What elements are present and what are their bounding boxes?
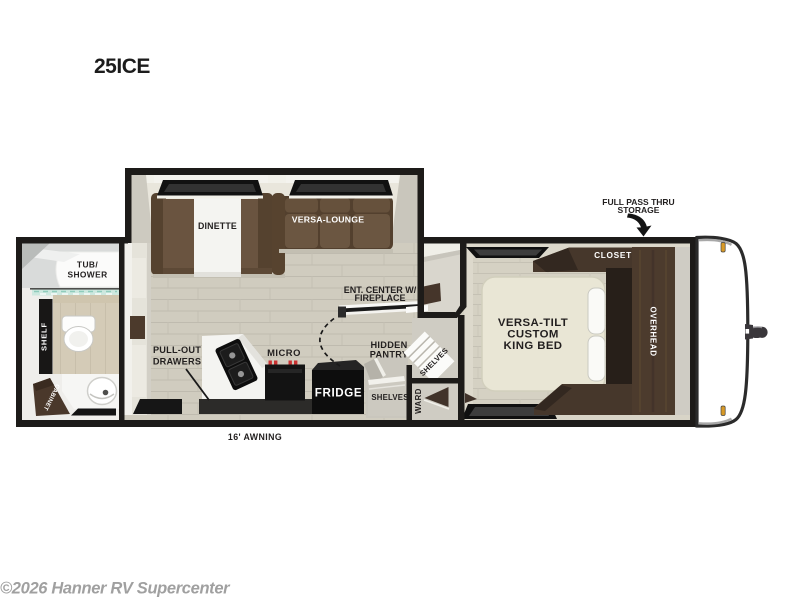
svg-text:25ICE: 25ICE [94,55,150,78]
svg-text:SHOWER: SHOWER [67,270,107,280]
svg-text:TUB/: TUB/ [77,260,98,270]
svg-text:FRIDGE: FRIDGE [315,387,362,400]
svg-text:©2026 Hanner RV Supercenter: ©2026 Hanner RV Supercenter [0,580,231,598]
svg-text:SHELVES: SHELVES [371,393,408,402]
svg-text:MICRO: MICRO [267,347,301,358]
svg-text:VERSA-TILT: VERSA-TILT [498,317,568,329]
svg-text:CLOSET: CLOSET [594,250,632,260]
svg-text:DINETTE: DINETTE [198,221,237,231]
svg-text:FIREPLACE: FIREPLACE [354,293,405,303]
svg-text:CUSTOM: CUSTOM [507,329,559,341]
svg-text:DRAWERS: DRAWERS [153,357,201,367]
svg-text:SHELF: SHELF [39,322,48,351]
svg-text:16' AWNING: 16' AWNING [228,432,282,442]
svg-text:PULL-OUT: PULL-OUT [153,345,201,355]
svg-text:KING BED: KING BED [504,340,563,352]
svg-text:OVERHEAD: OVERHEAD [649,306,658,356]
svg-text:STORAGE: STORAGE [618,205,660,215]
svg-text:PANTRY: PANTRY [370,350,409,360]
svg-text:VERSA-LOUNGE: VERSA-LOUNGE [292,215,364,225]
svg-text:WARD: WARD [414,388,423,414]
svg-text:HIDDEN: HIDDEN [370,340,407,350]
